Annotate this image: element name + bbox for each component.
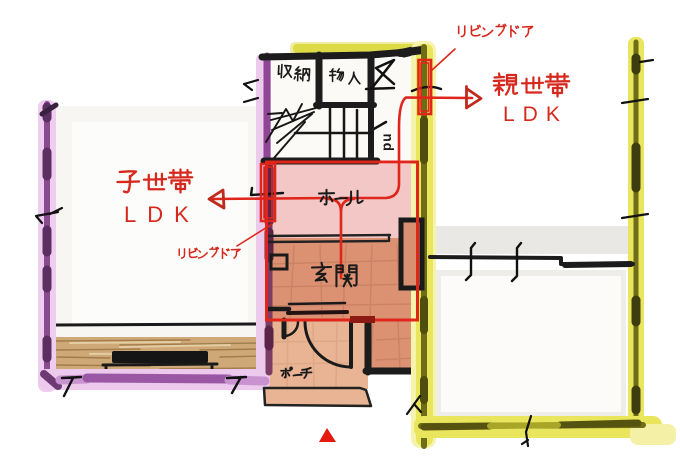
svg-text:pu: pu xyxy=(379,133,394,152)
svg-text:LDK: LDK xyxy=(124,202,200,227)
svg-text:LDK: LDK xyxy=(503,103,568,126)
